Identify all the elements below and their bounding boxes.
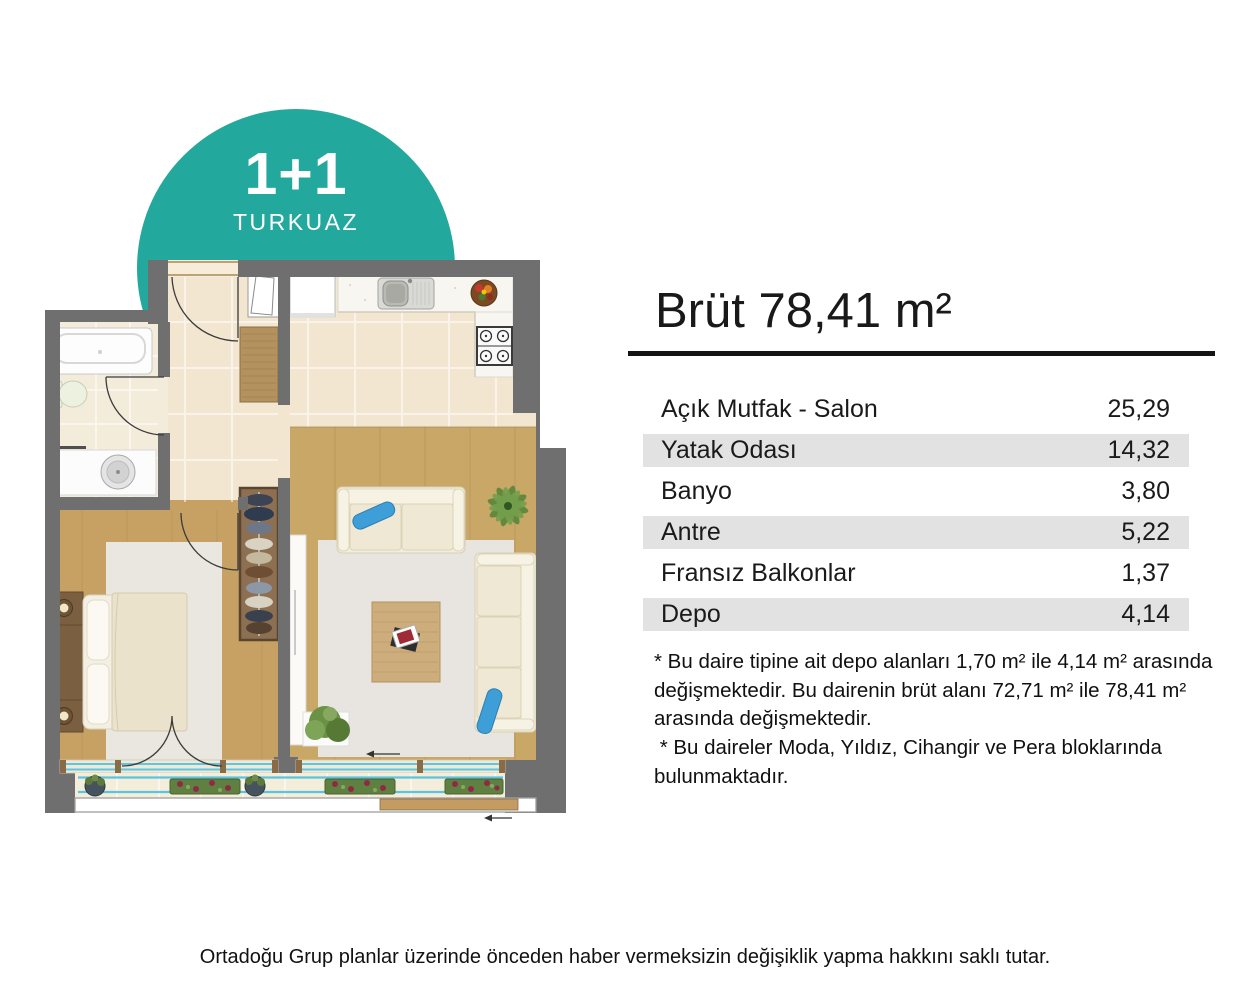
floor-plan [25,250,570,825]
info-panel: Brüt 78,41 m² Açık Mutfak - Salon 25,29 … [628,281,1215,791]
table-row: Yatak Odası 14,32 [643,430,1189,471]
bed [47,592,187,732]
room-label: Depo [643,600,1121,629]
hall-cabinet [240,327,278,402]
wardrobe [240,488,278,640]
coffee-table [372,602,440,682]
room-area-value: 5,22 [1121,518,1189,547]
title-divider [628,351,1215,356]
table-row: Açık Mutfak - Salon 25,29 [643,389,1189,430]
fridge [290,275,335,318]
room-area-value: 1,37 [1121,559,1189,588]
unit-name-label: TURKUAZ [137,211,455,234]
bathtub [48,328,152,374]
room-label: Açık Mutfak - Salon [643,395,1107,424]
footnote-text: * Bu daire tipine ait depo alanları 1,70… [654,648,1214,791]
room-area-value: 25,29 [1107,395,1189,424]
gross-area-title: Brüt 78,41 m² [628,281,1215,342]
table-row: Antre 5,22 [643,512,1189,553]
fruit-bowl [471,280,497,306]
footer-disclaimer: Ortadoğu Grup planlar üzerinde önceden h… [0,946,1250,969]
room-area-value: 3,80 [1121,477,1189,506]
table-row: Banyo 3,80 [643,471,1189,512]
room-label: Antre [643,518,1121,547]
entrance-threshold [168,260,238,277]
room-label: Yatak Odası [643,436,1107,465]
entry-closet [248,272,280,317]
flower-box [170,779,503,794]
room-area-value: 14,32 [1107,436,1189,465]
table-row: Depo 4,14 [643,594,1189,635]
page: 1+1 TURKUAZ [0,0,1250,1000]
room-label: Banyo [643,477,1121,506]
stove [477,327,512,365]
room-label: Fransız Balkonlar [643,559,1121,588]
area-table: Açık Mutfak - Salon 25,29 Yatak Odası 14… [643,389,1189,635]
sofa-top [337,487,465,553]
kitchen-sink [378,278,434,309]
unit-type-label: 1+1 [137,145,455,204]
planter-plant [303,706,350,746]
table-row: Fransız Balkonlar 1,37 [643,553,1189,594]
sofa-right [475,553,536,735]
room-area-value: 4,14 [1121,600,1189,629]
bathroom-sink [48,446,156,495]
